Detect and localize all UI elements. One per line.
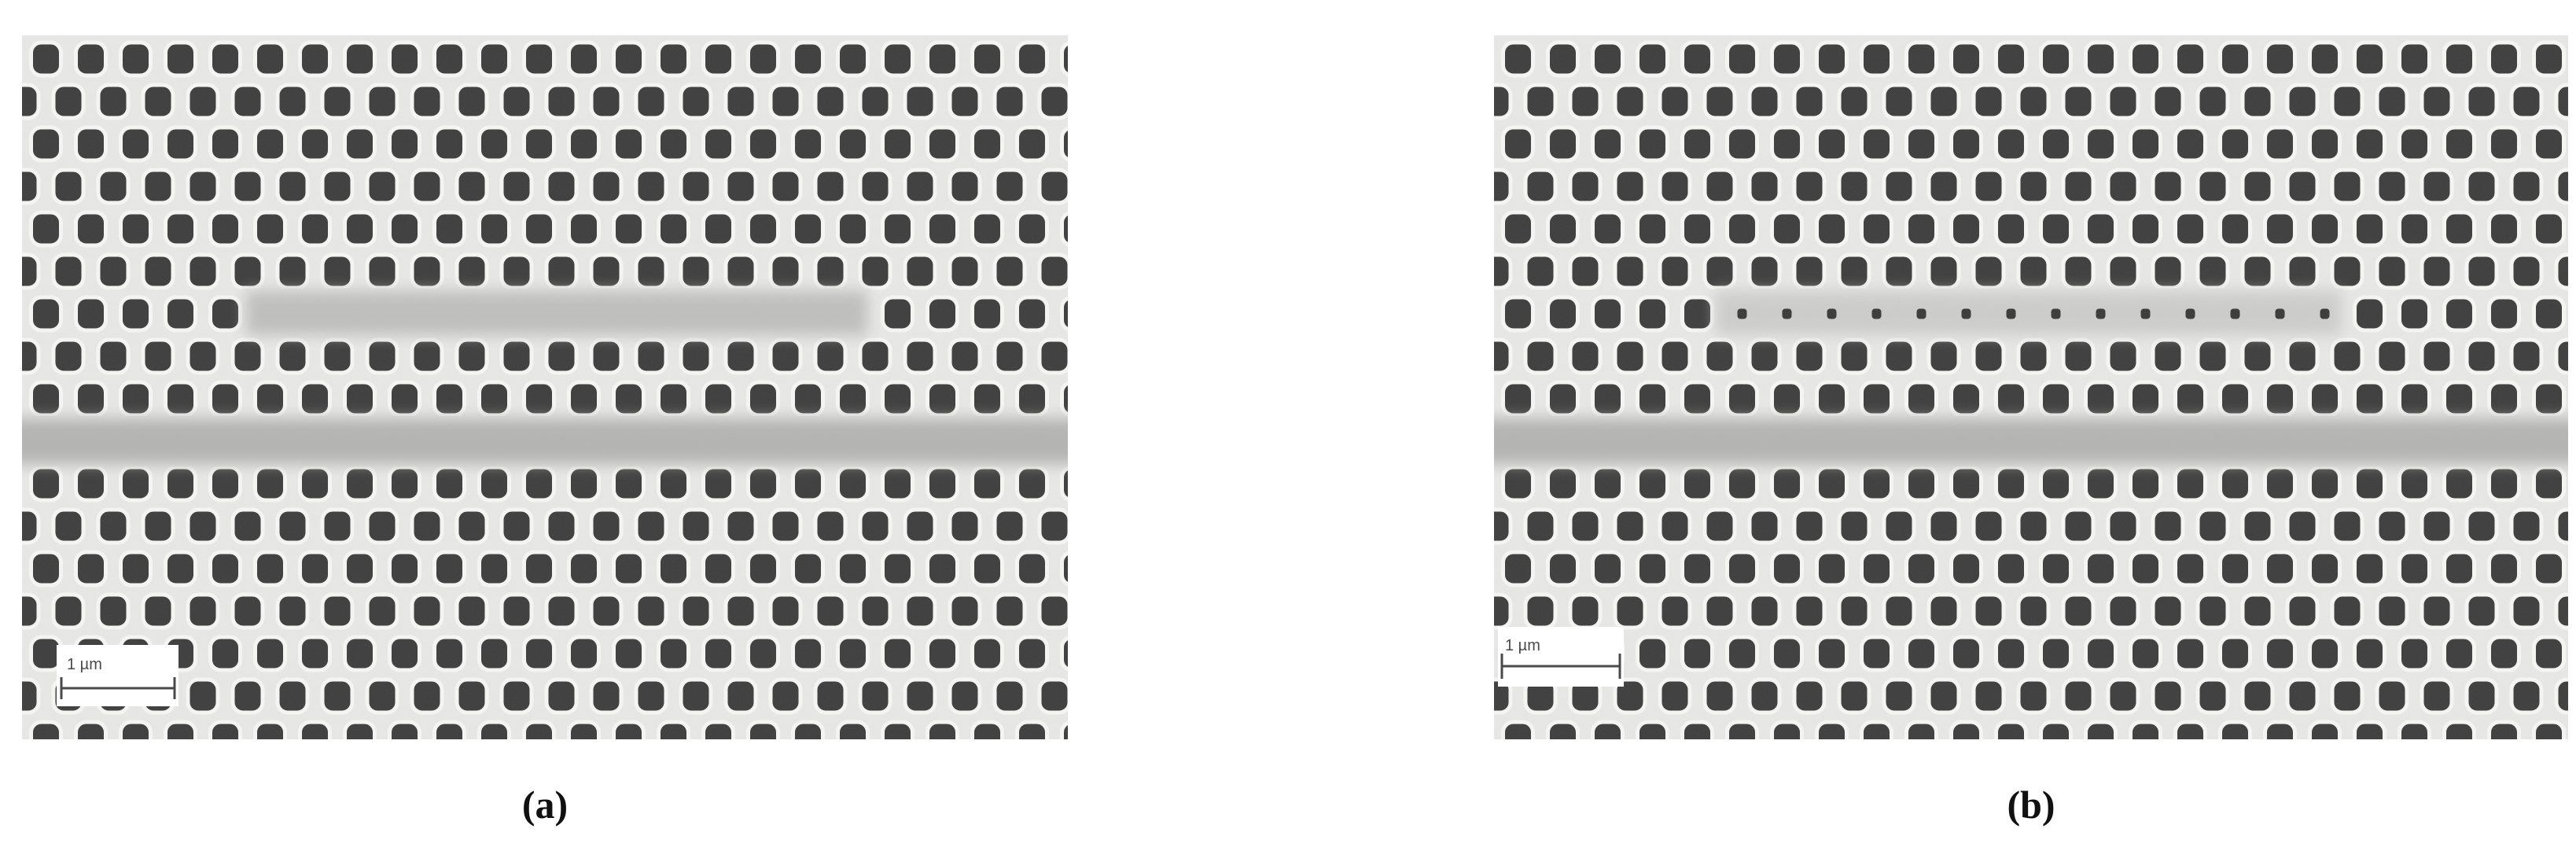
scale-bar: 1 µm	[1498, 627, 1624, 687]
scale-bar-box	[1498, 627, 1624, 687]
sem-panel-b: 1 µm (b)	[1494, 35, 2568, 829]
sem-grain-overlay	[22, 35, 1068, 739]
scale-bar-label: 1 µm	[1505, 637, 1540, 654]
scale-bar-box	[57, 645, 178, 706]
panel-b-label: (b)	[1494, 780, 2568, 829]
sem-grain-overlay	[1494, 35, 2568, 739]
scale-bar-label: 1 µm	[67, 656, 102, 673]
panel-a-label: (a)	[22, 780, 1068, 829]
sem-image-a: 1 µm	[22, 35, 1068, 739]
scale-bar: 1 µm	[57, 645, 178, 706]
sem-panel-a: 1 µm (a)	[22, 35, 1068, 829]
sem-image-b: 1 µm	[1494, 35, 2568, 739]
